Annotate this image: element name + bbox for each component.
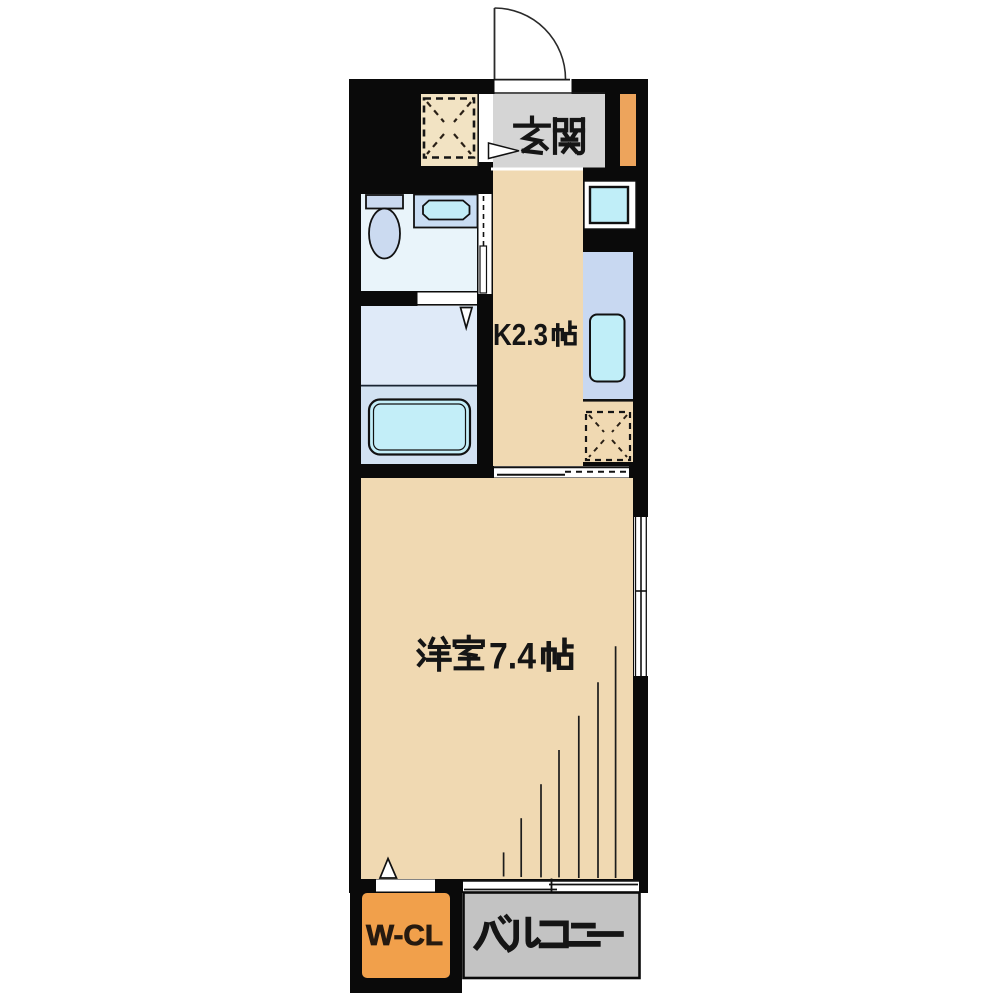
svg-text:7.4: 7.4 xyxy=(489,636,536,677)
svg-text:W-CL: W-CL xyxy=(366,920,443,952)
svg-text:K2.3: K2.3 xyxy=(493,317,548,352)
